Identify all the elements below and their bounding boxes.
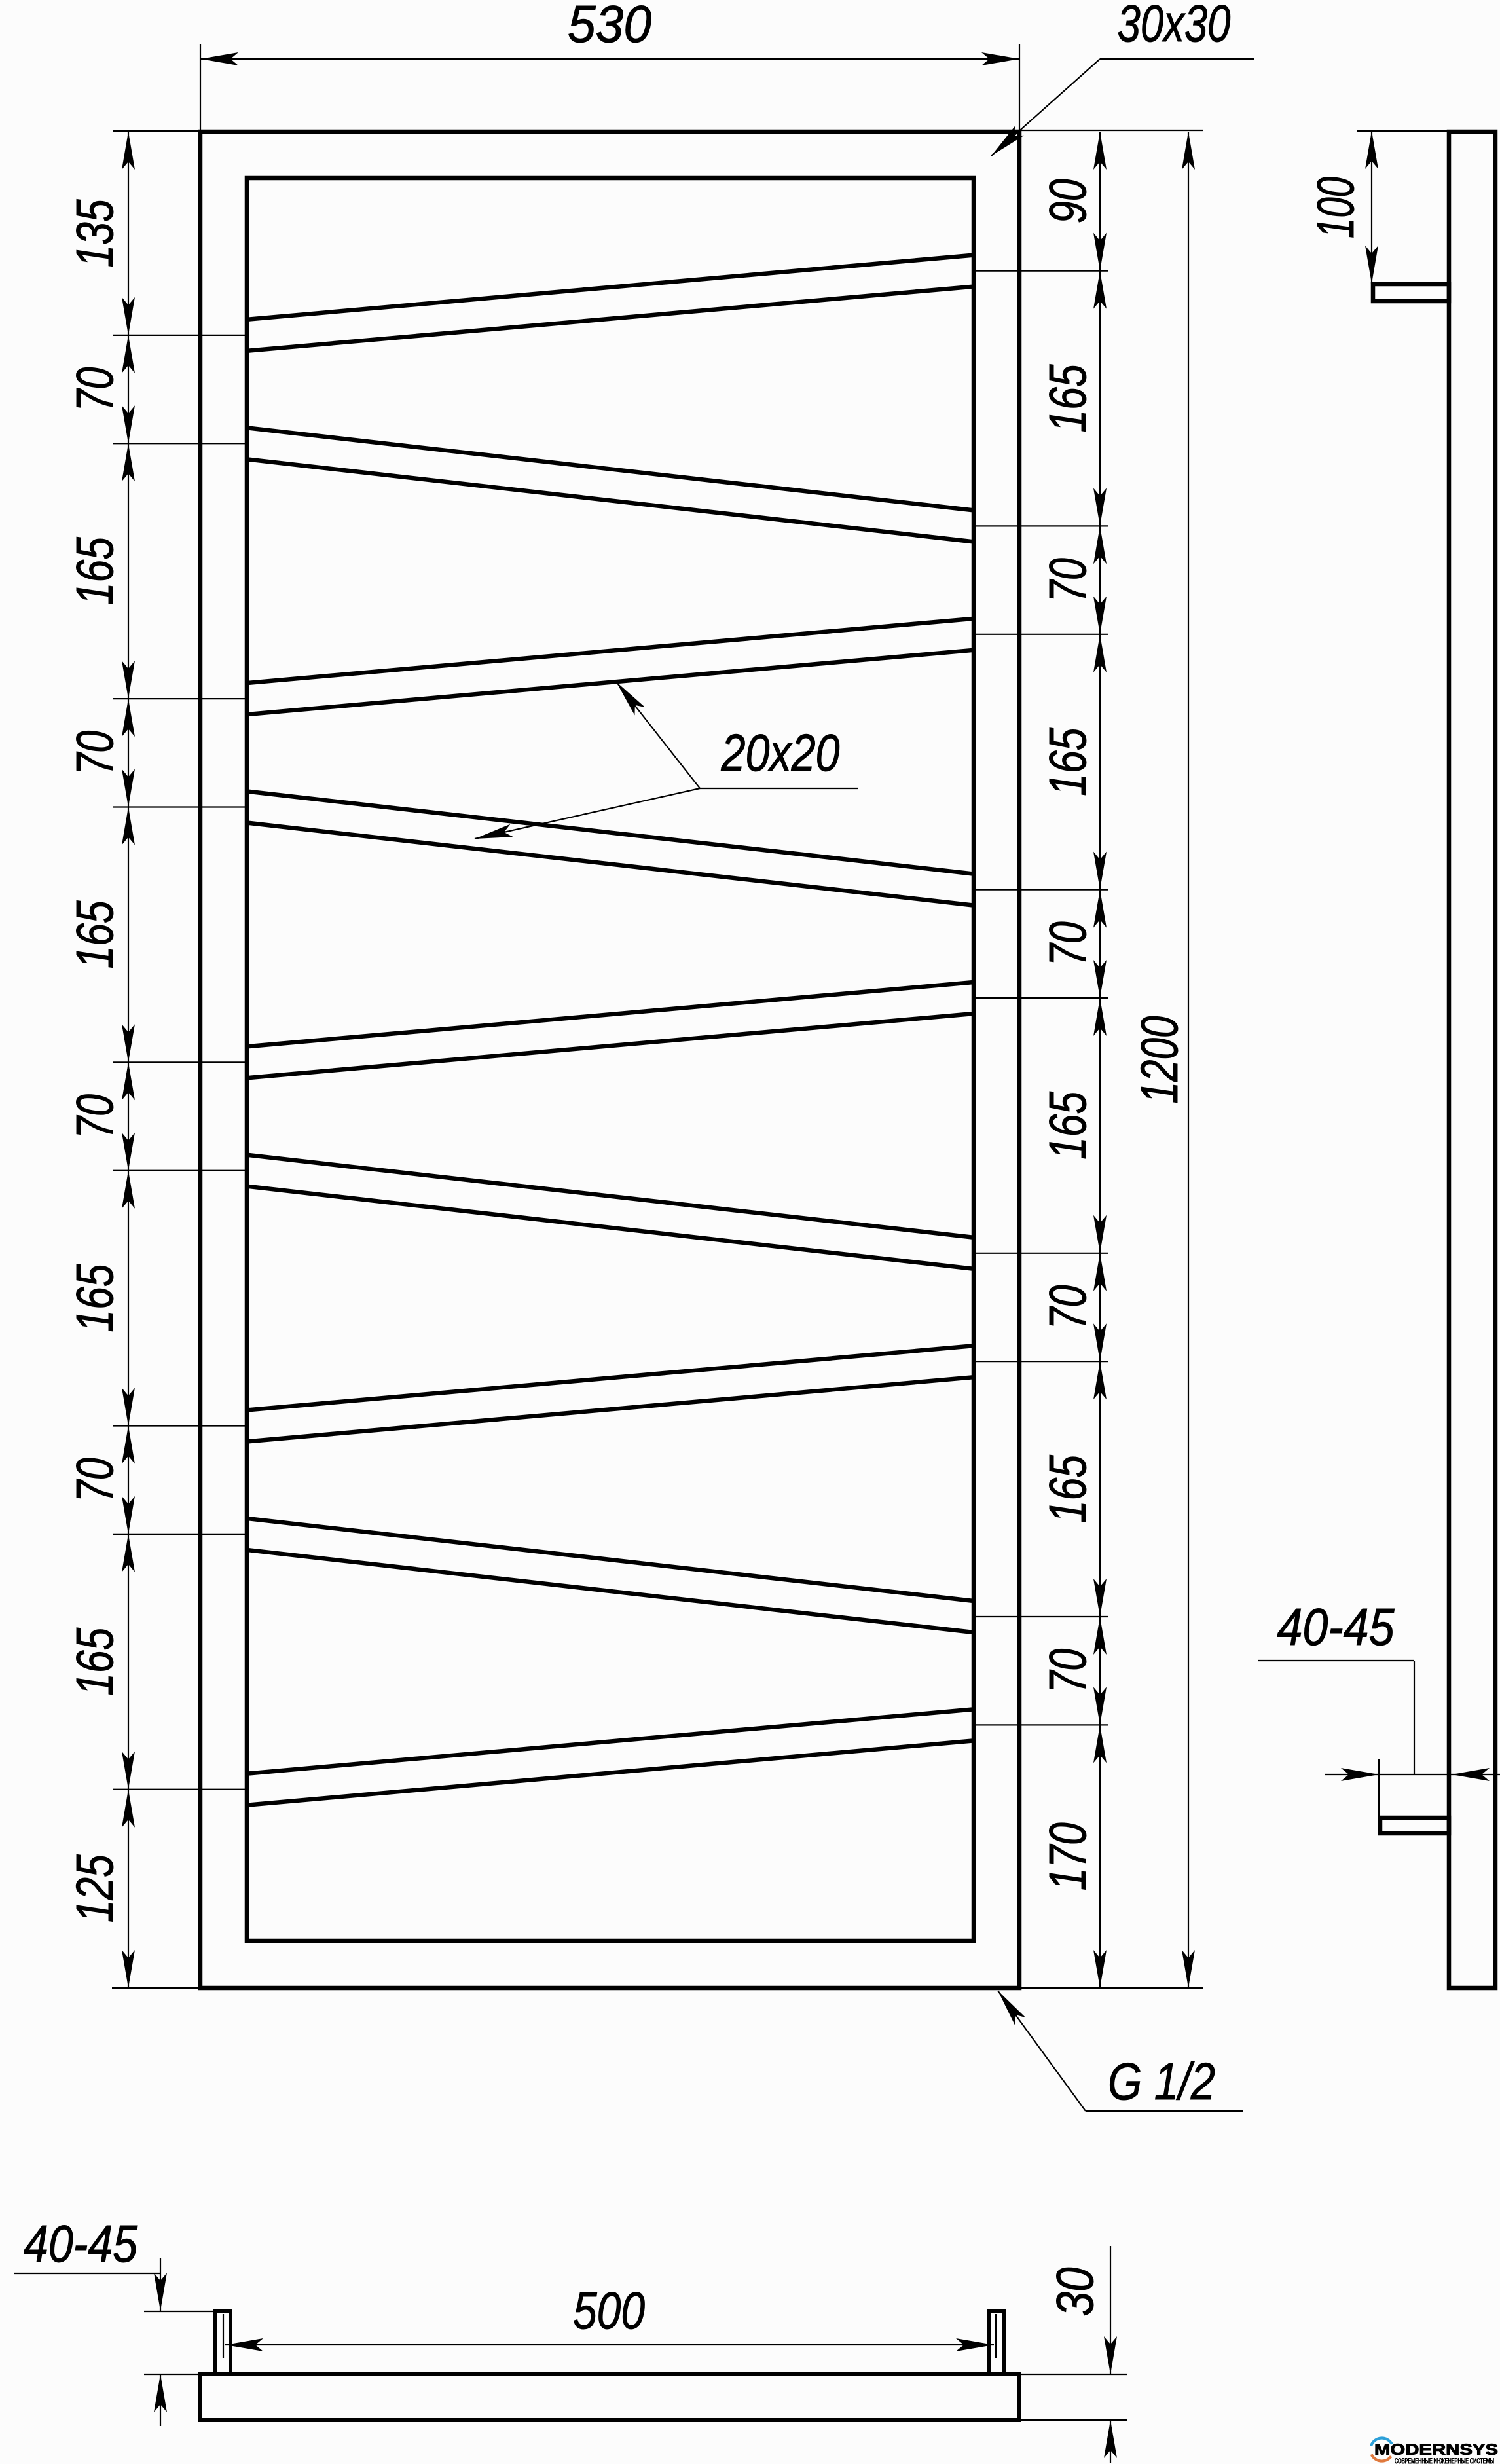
svg-text:40-45: 40-45 <box>24 2215 137 2273</box>
svg-text:70: 70 <box>65 731 124 775</box>
svg-text:40-45: 40-45 <box>1277 1598 1395 1656</box>
svg-text:165: 165 <box>1038 727 1097 796</box>
svg-text:70: 70 <box>65 1458 124 1502</box>
svg-text:165: 165 <box>65 537 124 605</box>
svg-text:165: 165 <box>65 900 124 968</box>
svg-text:СОВРЕМЕННЫЕ ИНЖЕНЕРНЫЕ СИСТЕМЫ: СОВРЕМЕННЫЕ ИНЖЕНЕРНЫЕ СИСТЕМЫ <box>1395 2457 1494 2464</box>
svg-text:500: 500 <box>573 2281 645 2340</box>
svg-text:165: 165 <box>1038 364 1097 432</box>
svg-text:70: 70 <box>1038 921 1097 966</box>
svg-text:20x20: 20x20 <box>721 724 840 782</box>
svg-text:165: 165 <box>65 1264 124 1332</box>
svg-text:30: 30 <box>1046 2268 1104 2317</box>
svg-text:70: 70 <box>1038 558 1097 602</box>
svg-text:125: 125 <box>65 1854 124 1922</box>
svg-text:530: 530 <box>568 0 651 53</box>
svg-text:135: 135 <box>65 199 124 267</box>
svg-text:70: 70 <box>65 1094 124 1139</box>
svg-text:165: 165 <box>65 1627 124 1695</box>
svg-text:70: 70 <box>1038 1285 1097 1330</box>
svg-text:MODERNSYS: MODERNSYS <box>1374 2441 1498 2459</box>
svg-text:100: 100 <box>1306 177 1364 238</box>
svg-text:90: 90 <box>1038 179 1097 223</box>
svg-text:30x30: 30x30 <box>1118 0 1231 52</box>
svg-text:165: 165 <box>1038 1092 1097 1160</box>
svg-text:70: 70 <box>1038 1649 1097 1693</box>
svg-text:170: 170 <box>1038 1822 1097 1890</box>
svg-text:1200: 1200 <box>1130 1016 1188 1104</box>
svg-text:165: 165 <box>1038 1455 1097 1523</box>
svg-text:70: 70 <box>65 367 124 412</box>
svg-text:G 1/2: G 1/2 <box>1108 2052 1215 2110</box>
